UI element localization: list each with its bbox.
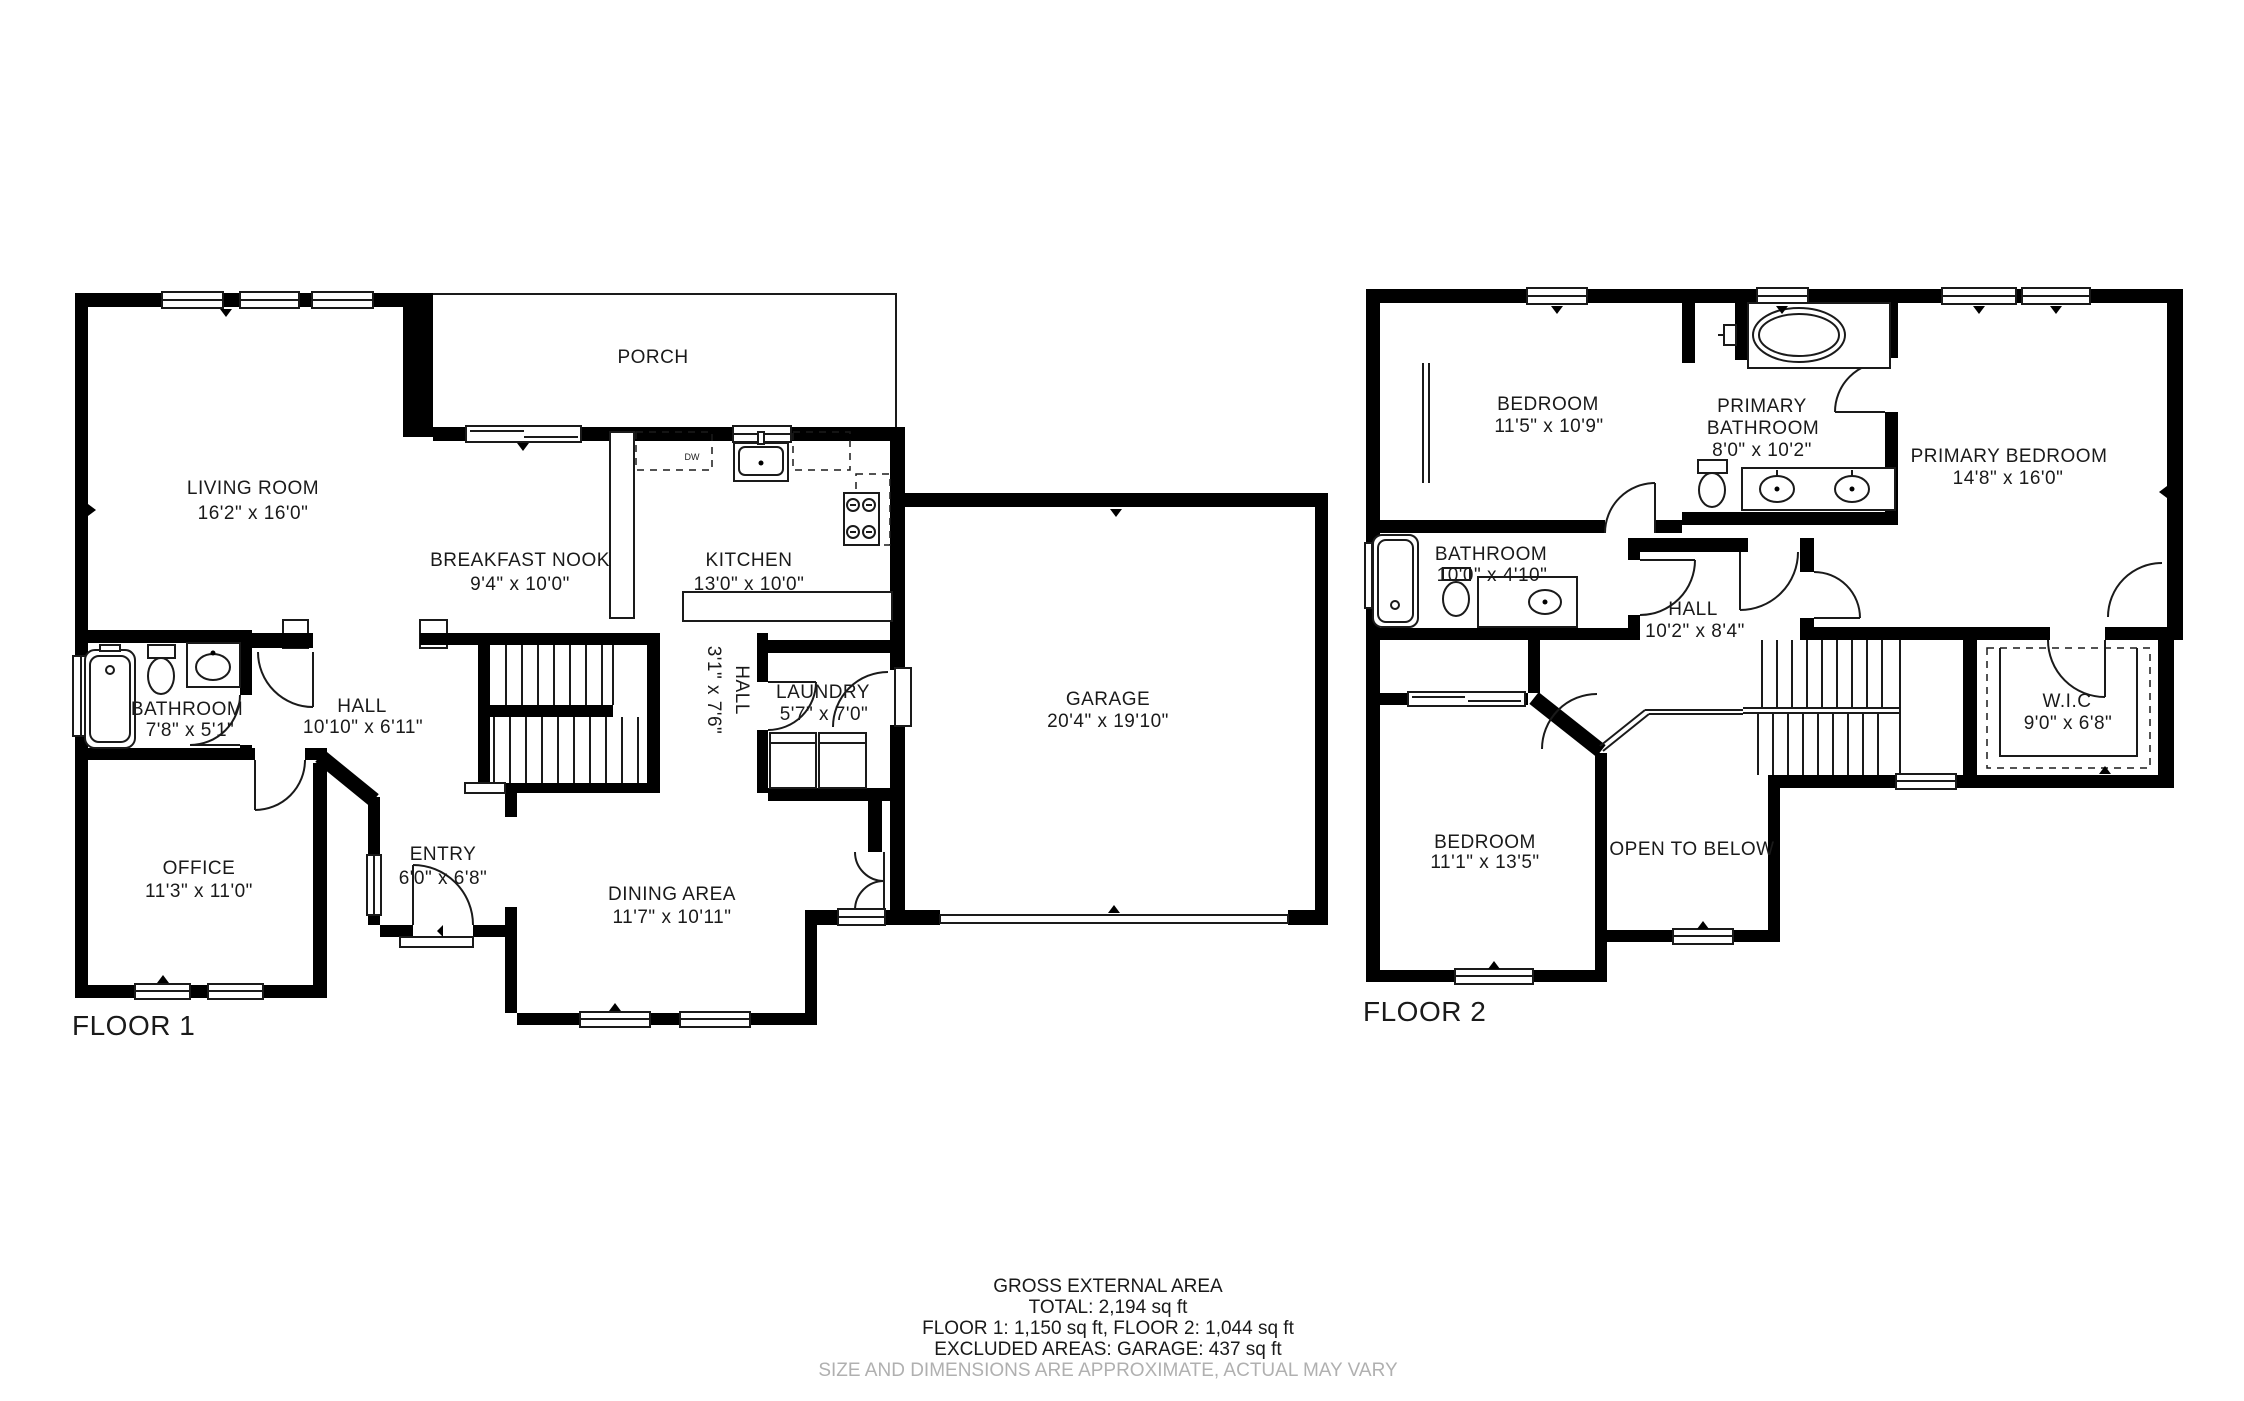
dining-dims: 11'7" x 10'11"	[613, 907, 732, 928]
primary-bathroom-label-2: BATHROOM	[1707, 418, 1819, 439]
bathroom1-dims: 7'8" x 5'1"	[146, 720, 235, 741]
floor1-title: FLOOR 1	[72, 1010, 195, 1041]
footer-total: TOTAL: 2,194 sq ft	[1029, 1297, 1188, 1318]
primary-bathroom-dims: 8'0" x 10'2"	[1712, 440, 1812, 461]
footer-gross-area: GROSS EXTERNAL AREA	[993, 1276, 1223, 1297]
entry-dims: 6'0" x 6'8"	[399, 868, 488, 889]
living-room-label: LIVING ROOM	[187, 478, 319, 499]
hall1-label: HALL	[337, 696, 387, 717]
stair-railing	[465, 783, 505, 793]
kitchen-dims: 13'0" x 10'0"	[694, 574, 805, 595]
washer-dryer-icon	[770, 733, 866, 788]
wic-dims: 9'0" x 6'8"	[2024, 713, 2113, 734]
garage-door-icon	[940, 915, 1288, 923]
bedroom1-dims: 11'5" x 10'9"	[1494, 416, 1603, 437]
breakfast-nook-dims: 9'4" x 10'0"	[470, 574, 570, 595]
sink-icon	[187, 643, 240, 687]
garage-dims: 20'4" x 19'10"	[1047, 711, 1169, 732]
hall-small-label: HALL	[731, 665, 752, 715]
primary-bedroom-dims: 14'8" x 16'0"	[1953, 468, 2064, 489]
staircase-floor2	[1600, 640, 1900, 775]
floor-plan-svg: LIVING ROOM 16'2" x 16'0" PORCH BREAKFAS…	[0, 0, 2244, 1401]
toilet-icon	[1698, 460, 1727, 507]
porch-label: PORCH	[617, 347, 688, 368]
primary-bathroom-label-1: PRIMARY	[1717, 396, 1807, 417]
hall2-dims: 10'2" x 8'4"	[1645, 621, 1745, 642]
bathtub-icon	[1373, 535, 1418, 627]
bathroom2-dims: 10'0" x 4'10"	[1437, 565, 1548, 586]
hall-small-dims: 3'1" x 7'6"	[703, 646, 724, 735]
laundry-dims: 5'7" x 7'0"	[780, 704, 869, 725]
floor2-plan: BEDROOM 11'5" x 10'9" PRIMARY BATHROOM 8…	[1363, 288, 2183, 1027]
bedroom2-label: BEDROOM	[1434, 832, 1536, 853]
living-room-dims: 16'2" x 16'0"	[198, 503, 309, 524]
primary-bedroom-label: PRIMARY BEDROOM	[1911, 446, 2108, 467]
dishwasher-label: DW	[685, 452, 700, 462]
open-to-below-label: OPEN TO BELOW	[1609, 839, 1774, 860]
double-sink-icon	[1742, 468, 1895, 510]
entry-label: ENTRY	[410, 844, 477, 865]
office-dims: 11'3" x 11'0"	[145, 881, 253, 902]
floor-plan-page: LIVING ROOM 16'2" x 16'0" PORCH BREAKFAS…	[0, 0, 2244, 1401]
garage-label: GARAGE	[1066, 689, 1150, 710]
staircase-floor1	[465, 645, 638, 793]
footer-disclaimer: SIZE AND DIMENSIONS ARE APPROXIMATE, ACT…	[818, 1360, 1398, 1381]
entry-stoop	[400, 937, 473, 947]
area-summary: GROSS EXTERNAL AREA TOTAL: 2,194 sq ft F…	[818, 1276, 1398, 1381]
hall1-dims: 10'10" x 6'11"	[303, 717, 423, 738]
bedroom2-dims: 11'1" x 13'5"	[1430, 852, 1539, 873]
hall2-label: HALL	[1668, 599, 1718, 620]
dining-label: DINING AREA	[608, 884, 736, 905]
bathroom2-label: BATHROOM	[1435, 544, 1547, 565]
floor2-title: FLOOR 2	[1363, 996, 1486, 1027]
footer-floors: FLOOR 1: 1,150 sq ft, FLOOR 2: 1,044 sq …	[922, 1318, 1294, 1339]
laundry-label: LAUNDRY	[776, 682, 870, 703]
kitchen-label: KITCHEN	[706, 550, 793, 571]
toilet-icon	[148, 645, 175, 694]
bedroom1-label: BEDROOM	[1497, 394, 1599, 415]
bathroom1-label: BATHROOM	[131, 699, 243, 720]
floor1-plan: LIVING ROOM 16'2" x 16'0" PORCH BREAKFAS…	[72, 292, 1328, 1041]
bathtub-icon	[85, 645, 135, 748]
wic-label: W.I.C	[2043, 691, 2092, 712]
stove-icon	[844, 493, 879, 545]
office-label: OFFICE	[163, 858, 236, 879]
breakfast-nook-label: BREAKFAST NOOK	[430, 550, 610, 571]
footer-excluded: EXCLUDED AREAS: GARAGE: 437 sq ft	[934, 1339, 1282, 1360]
